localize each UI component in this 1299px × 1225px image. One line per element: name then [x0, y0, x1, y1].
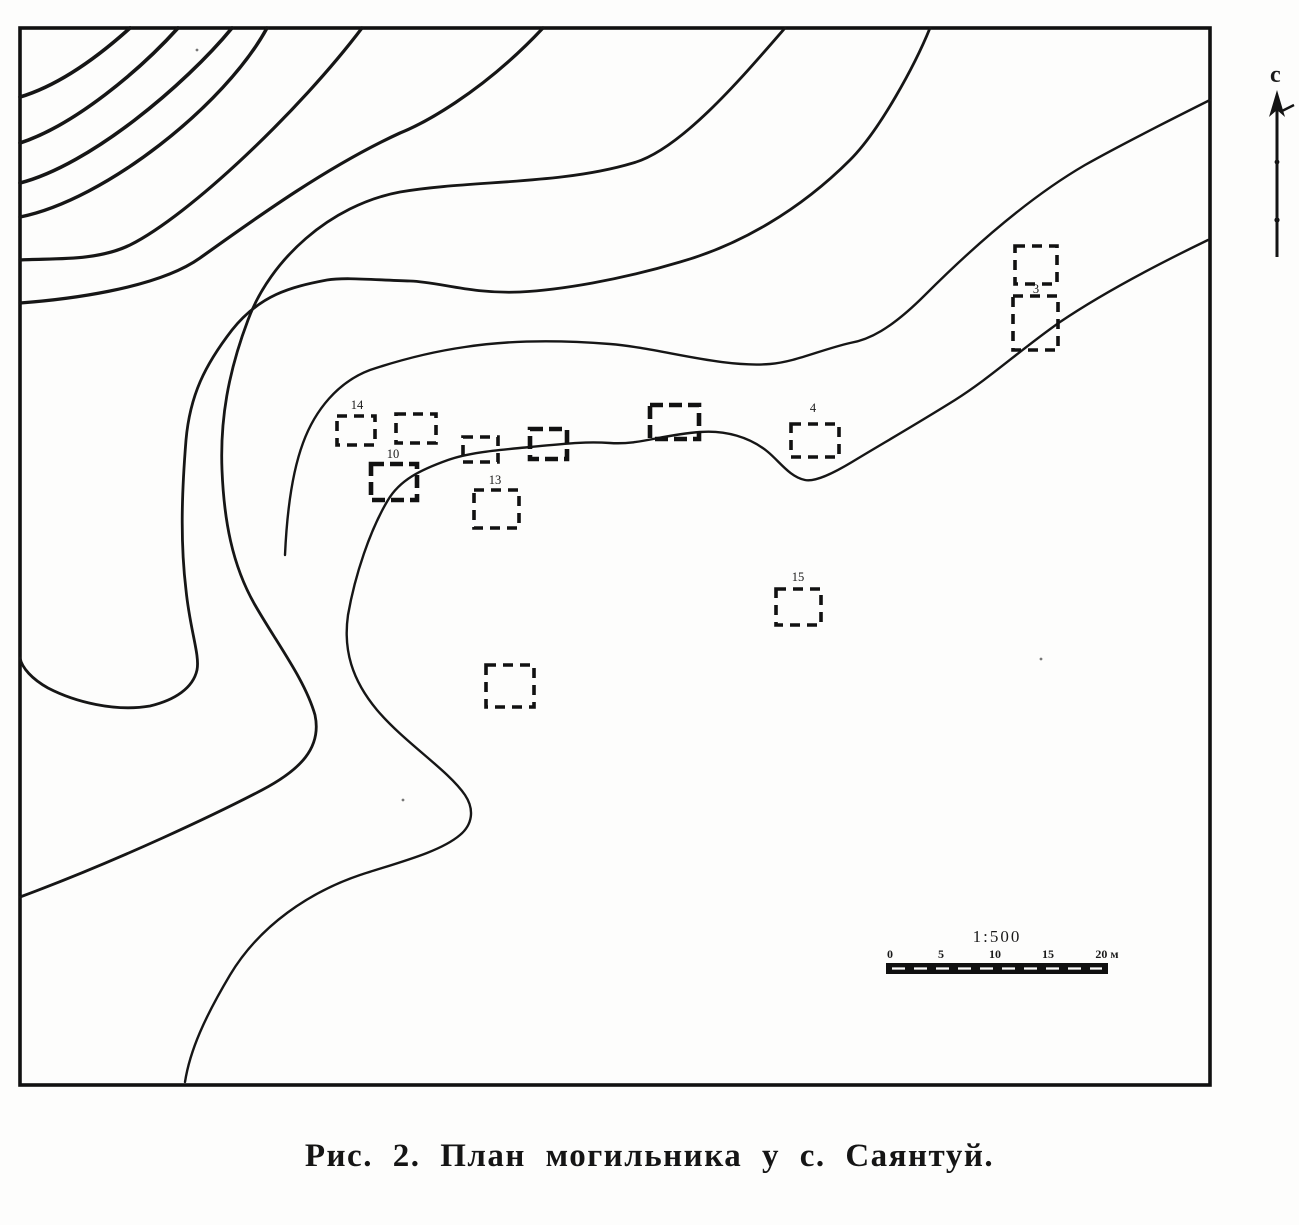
- grave-number-label: 15: [792, 570, 805, 584]
- contour-lines: [20, 28, 1210, 1082]
- figure-plan-sayantuy: 1410134315 с 1:500 05101520 м Рис. 2. Пл…: [0, 0, 1299, 1225]
- grave-rect: [371, 464, 417, 500]
- scale-tick-labels: 05101520 м: [887, 947, 1119, 961]
- contour-nw-4: [20, 28, 267, 217]
- north-label: с: [1270, 62, 1281, 88]
- scale-ratio-label: 1:500: [973, 927, 1022, 946]
- grave-rect: [474, 490, 519, 528]
- grave-number-label: 3: [1033, 282, 1039, 296]
- grave-number-label: 14: [351, 398, 364, 412]
- grave-rect: [396, 414, 436, 443]
- scale-tick-label: 5: [938, 947, 944, 961]
- scale-tick-label: 20 м: [1095, 947, 1118, 961]
- burial-ground-plan-map: 1410134315 с 1:500 05101520 м: [0, 0, 1299, 1225]
- figure-caption: Рис. 2. План могильника у с. Саянтуй.: [0, 1138, 1299, 1175]
- scale-tick-label: 15: [1042, 947, 1054, 961]
- scale-bar: 1:500 05101520 м: [886, 927, 1119, 974]
- contour-nw-3: [20, 28, 232, 183]
- grave-rect: [1013, 296, 1058, 350]
- grave-rect: [791, 424, 839, 457]
- scale-tick-label: 0: [887, 947, 893, 961]
- grave-rect: [463, 437, 498, 462]
- grave-number-label: 10: [387, 447, 400, 461]
- grave-rect: [486, 665, 534, 707]
- grave-number-label: 4: [810, 401, 817, 415]
- grave-rect: [1015, 246, 1057, 284]
- scale-tick-label: 10: [989, 947, 1001, 961]
- graves-layer: 1410134315: [337, 246, 1058, 707]
- contour-grave-terrace-lower: [185, 240, 1208, 1082]
- contour-grave-terrace-upper: [285, 100, 1210, 555]
- grave-rect: [776, 589, 821, 625]
- shaft-blot-1: [1275, 160, 1280, 165]
- grave-rect: [337, 416, 375, 445]
- map-frame: [20, 28, 1210, 1085]
- contour-nw-2: [20, 28, 178, 143]
- contour-ridge-shoulder: [20, 28, 930, 708]
- shaft-blot-2: [1274, 217, 1279, 222]
- contour-nw-5: [20, 28, 362, 260]
- north-arrow: с: [1269, 62, 1294, 257]
- grave-number-label: 13: [489, 473, 502, 487]
